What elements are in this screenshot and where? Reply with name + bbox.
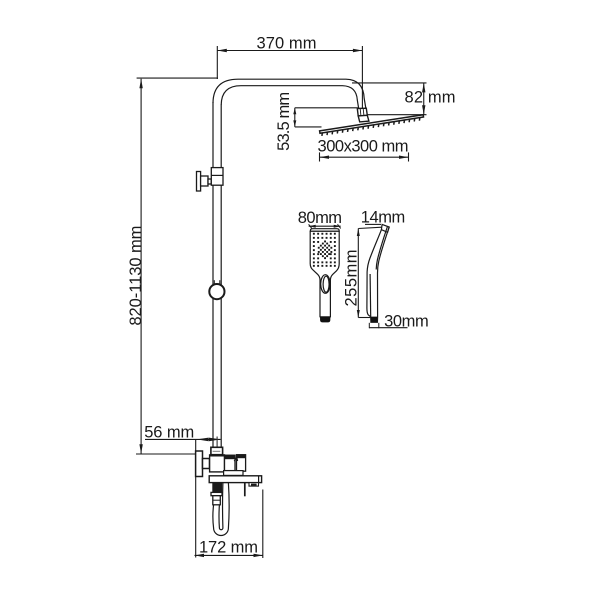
svg-text:300x300 mm: 300x300 mm xyxy=(318,137,409,155)
svg-text:255mm: 255mm xyxy=(342,250,360,307)
svg-text:80mm: 80mm xyxy=(298,209,342,227)
svg-text:820-1130 mm: 820-1130 mm xyxy=(127,226,145,326)
svg-text:370 mm: 370 mm xyxy=(257,35,317,53)
svg-text:82 mm: 82 mm xyxy=(405,89,456,107)
svg-text:53.5 mm: 53.5 mm xyxy=(275,92,293,151)
svg-text:172 mm: 172 mm xyxy=(199,539,258,557)
svg-text:56 mm: 56 mm xyxy=(144,424,194,442)
svg-text:14mm: 14mm xyxy=(361,208,406,226)
